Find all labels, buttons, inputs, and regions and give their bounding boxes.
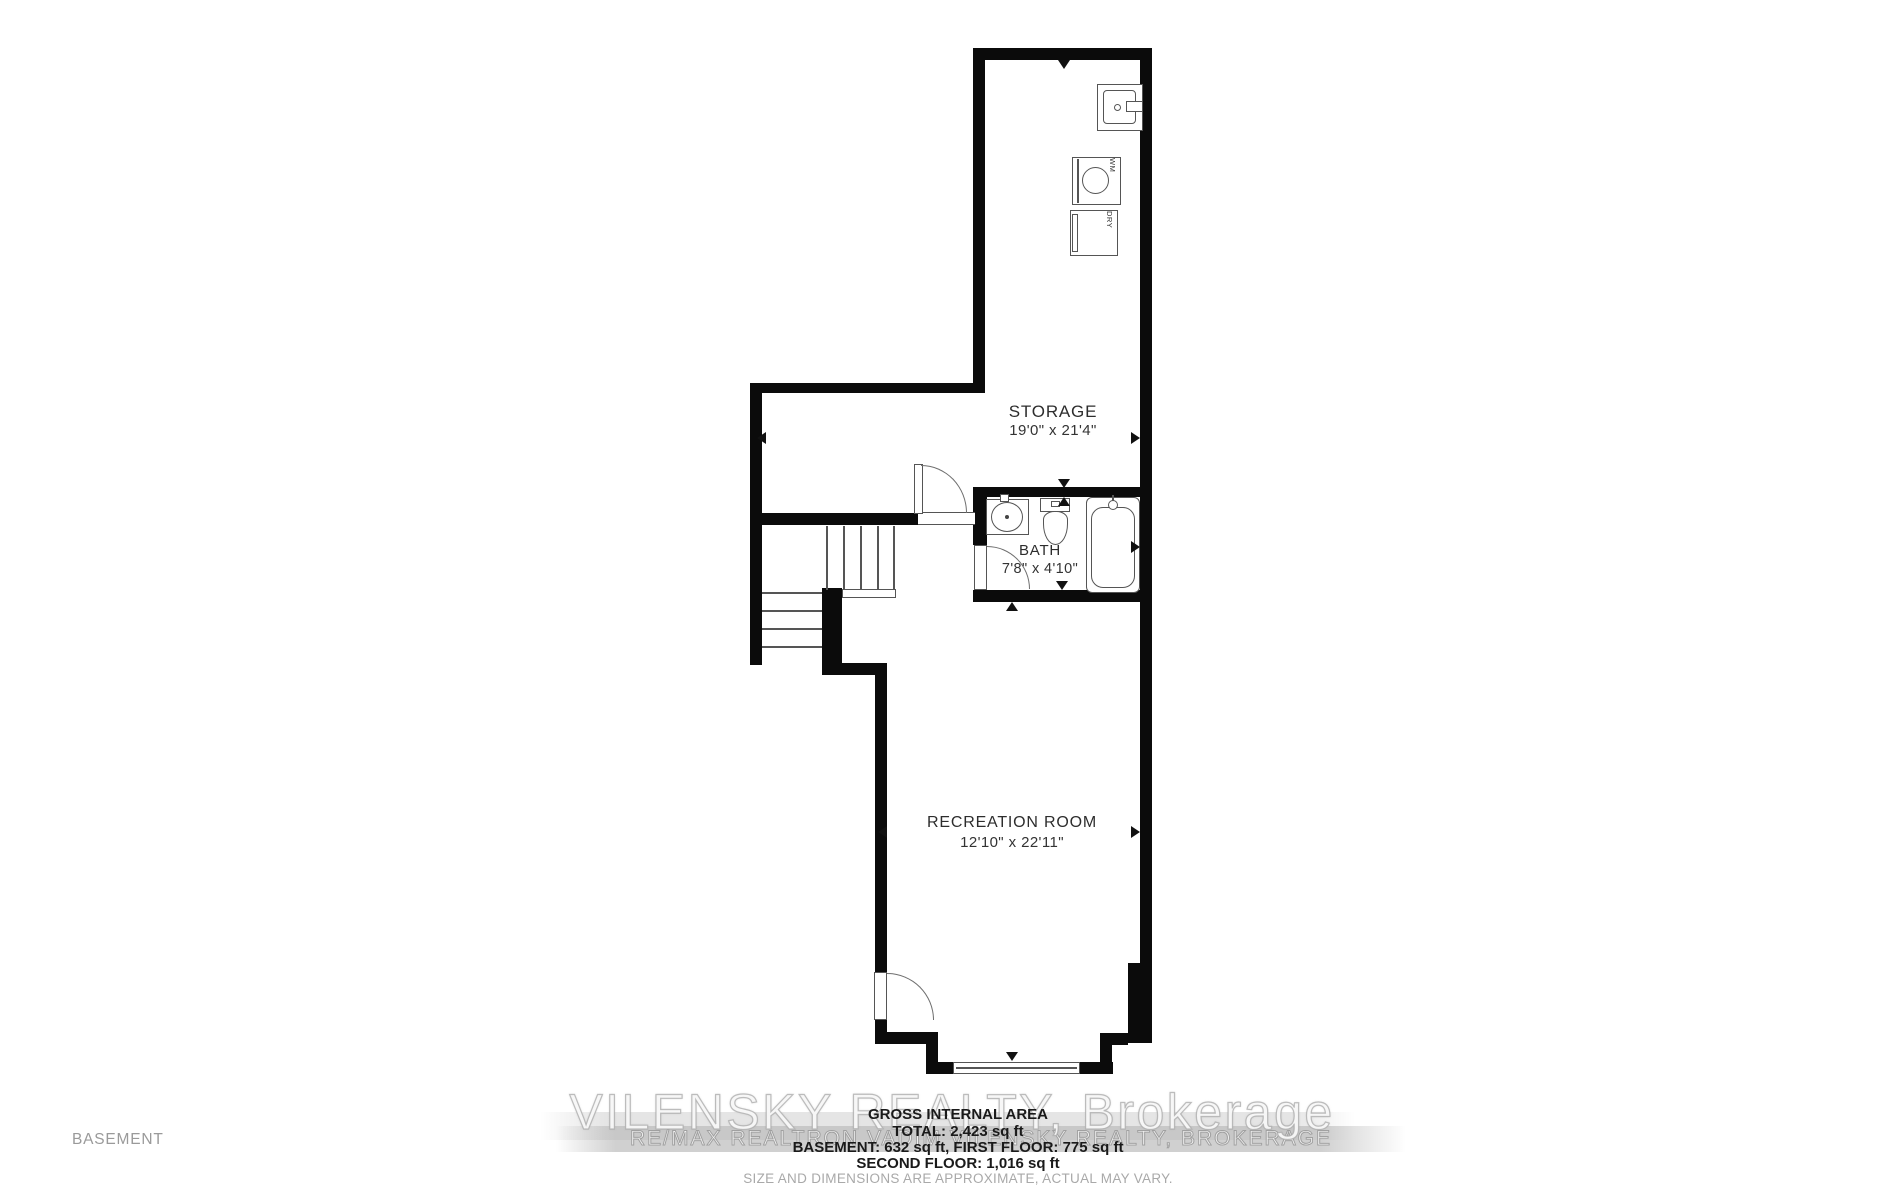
marker-window xyxy=(1006,1052,1018,1061)
footer-title: GROSS INTERNAL AREA xyxy=(868,1106,1048,1123)
footer-disclaimer: SIZE AND DIMENSIONS ARE APPROXIMATE, ACT… xyxy=(743,1171,1173,1186)
stair-tread-line xyxy=(826,526,828,590)
marker-bath-south-below xyxy=(1006,602,1018,611)
marker-storage-east xyxy=(1131,432,1140,444)
marker-top-wall xyxy=(1058,60,1070,69)
wall-storage-north xyxy=(750,383,985,393)
marker-bath-east xyxy=(1131,541,1140,553)
marker-bath-north-above xyxy=(1058,479,1070,488)
laundry-sink-drain xyxy=(1114,104,1121,111)
rec-door-swing-arc xyxy=(887,973,934,1020)
storage-door-swing-arc xyxy=(921,465,967,513)
marker-rec-west xyxy=(878,826,887,838)
wall-rec-se-vertical xyxy=(1100,1045,1112,1063)
wall-stairwell xyxy=(822,588,842,675)
bath-basin-tap xyxy=(1000,494,1009,502)
window-inner-line xyxy=(956,1067,1077,1069)
wall-rec-west-upper xyxy=(875,663,887,972)
wall-bath-north xyxy=(973,487,1140,497)
stair-tread-line xyxy=(860,526,862,590)
stair-tread-line xyxy=(893,526,895,590)
stair-tread-line xyxy=(762,628,822,630)
recreation-room-name: RECREATION ROOM xyxy=(927,814,1097,832)
bath-door-leaf xyxy=(974,545,987,590)
washing-machine-label: WM xyxy=(1108,158,1117,172)
marker-bath-south-above xyxy=(1056,581,1068,590)
stair-tread-line xyxy=(762,592,822,594)
bath-room-dimensions: 7'8" x 4'10" xyxy=(1002,561,1078,577)
bathtub-inner xyxy=(1091,507,1135,588)
wall-storage-south xyxy=(750,513,918,525)
rec-door-leaf xyxy=(874,972,887,1020)
bathtub-faucet xyxy=(1108,500,1118,510)
floor-plan-page: WM DRY STORAGE 19'0" x 21'4" BATH 7'8" x… xyxy=(0,0,1900,1187)
laundry-sink-tap xyxy=(1126,101,1143,112)
stair-landing xyxy=(842,589,896,598)
wall-right xyxy=(1140,48,1152,973)
dryer-label: DRY xyxy=(1105,211,1114,228)
wall-rec-sw-vertical xyxy=(926,1044,938,1063)
storage-door-threshold xyxy=(918,512,975,525)
bathtub-faucet-stem xyxy=(1112,495,1114,501)
marker-storage-west xyxy=(757,432,766,444)
footer-second-floor: SECOND FLOOR: 1,016 sq ft xyxy=(856,1155,1059,1172)
floor-label: BASEMENT xyxy=(72,1131,164,1149)
wall-rec-se-horizontal xyxy=(1100,1033,1128,1045)
stair-tread-line xyxy=(843,526,845,590)
wall-top xyxy=(973,48,1152,60)
footer-floors: BASEMENT: 632 sq ft, FIRST FLOOR: 775 sq… xyxy=(793,1139,1124,1156)
storage-room-dimensions: 19'0" x 21'4" xyxy=(1009,422,1096,439)
recreation-room-dimensions: 12'10" x 22'11" xyxy=(960,834,1064,851)
dryer-door xyxy=(1072,214,1078,252)
wall-rec-se-block xyxy=(1128,963,1152,1043)
stair-tread-line xyxy=(762,646,822,648)
bath-basin-drain xyxy=(1005,515,1009,519)
stair-tread-line xyxy=(762,610,822,612)
marker-rec-east xyxy=(1131,826,1140,838)
bath-room-name: BATH xyxy=(1019,542,1061,559)
footer-total: TOTAL: 2,423 sq ft xyxy=(892,1123,1023,1140)
wall-upper-left xyxy=(973,48,985,393)
wall-rec-sw-horizontal xyxy=(875,1032,938,1044)
washing-machine-door-line xyxy=(1077,159,1079,203)
stair-tread-line xyxy=(877,526,879,590)
marker-bath-north-below xyxy=(1058,497,1070,506)
storage-room-name: STORAGE xyxy=(1009,402,1097,422)
toilet-bowl xyxy=(1043,511,1068,545)
washing-machine-drum xyxy=(1082,167,1109,194)
